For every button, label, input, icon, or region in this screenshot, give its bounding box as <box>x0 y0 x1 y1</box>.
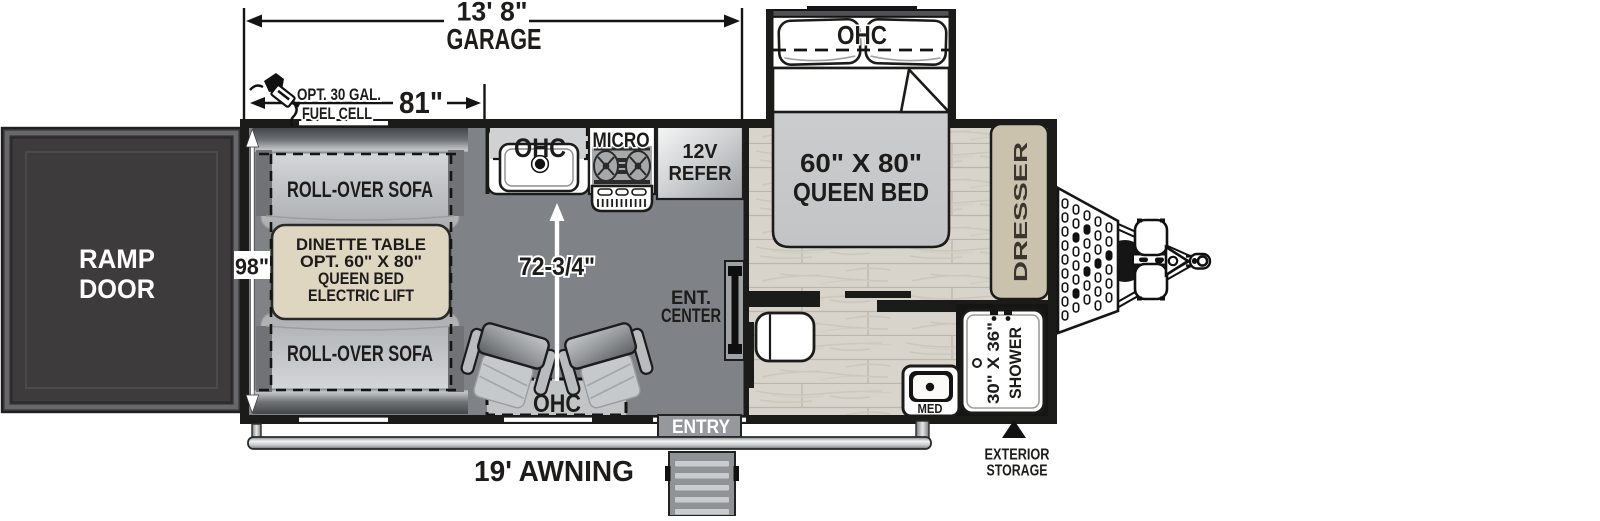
svg-text:SHOWER: SHOWER <box>1007 327 1025 399</box>
svg-text:RAMP: RAMP <box>79 244 155 274</box>
svg-text:19' AWNING: 19' AWNING <box>474 456 634 488</box>
svg-text:ROLL-OVER SOFA: ROLL-OVER SOFA <box>287 341 433 366</box>
svg-text:CENTER: CENTER <box>661 306 721 327</box>
svg-text:13' 8": 13' 8" <box>457 0 528 27</box>
svg-text:QUEEN BED: QUEEN BED <box>793 177 929 207</box>
svg-text:DINETTE TABLE: DINETTE TABLE <box>296 236 426 254</box>
svg-text:12V: 12V <box>683 141 719 163</box>
svg-text:DRESSER: DRESSER <box>1010 142 1031 282</box>
svg-text:OPT. 30 GAL.: OPT. 30 GAL. <box>297 85 381 104</box>
svg-text:REFER: REFER <box>669 163 733 185</box>
svg-text:ENTRY: ENTRY <box>672 417 730 438</box>
svg-text:ELECTRIC LIFT: ELECTRIC LIFT <box>308 287 414 305</box>
svg-text:OHC: OHC <box>533 390 581 418</box>
svg-text:FUEL CELL: FUEL CELL <box>302 104 372 123</box>
svg-text:GARAGE: GARAGE <box>447 24 542 56</box>
svg-text:98": 98" <box>235 254 269 280</box>
svg-text:OHC: OHC <box>837 20 887 50</box>
svg-text:DOOR: DOOR <box>79 274 155 304</box>
svg-text:STORAGE: STORAGE <box>987 463 1048 480</box>
svg-text:MED: MED <box>918 401 943 416</box>
svg-text:ROLL-OVER SOFA: ROLL-OVER SOFA <box>287 177 433 202</box>
svg-text:81": 81" <box>399 85 443 120</box>
svg-text:OPT. 60" X 80": OPT. 60" X 80" <box>300 253 422 271</box>
svg-text:30" X 36": 30" X 36" <box>985 322 1003 404</box>
svg-text:72-3/4": 72-3/4" <box>519 253 595 281</box>
svg-text:60" X 80": 60" X 80" <box>800 148 922 178</box>
svg-text:MICRO: MICRO <box>593 129 650 152</box>
svg-text:OHC: OHC <box>514 133 566 163</box>
svg-text:EXTERIOR: EXTERIOR <box>985 447 1050 464</box>
svg-text:QUEEN BED: QUEEN BED <box>318 270 404 288</box>
